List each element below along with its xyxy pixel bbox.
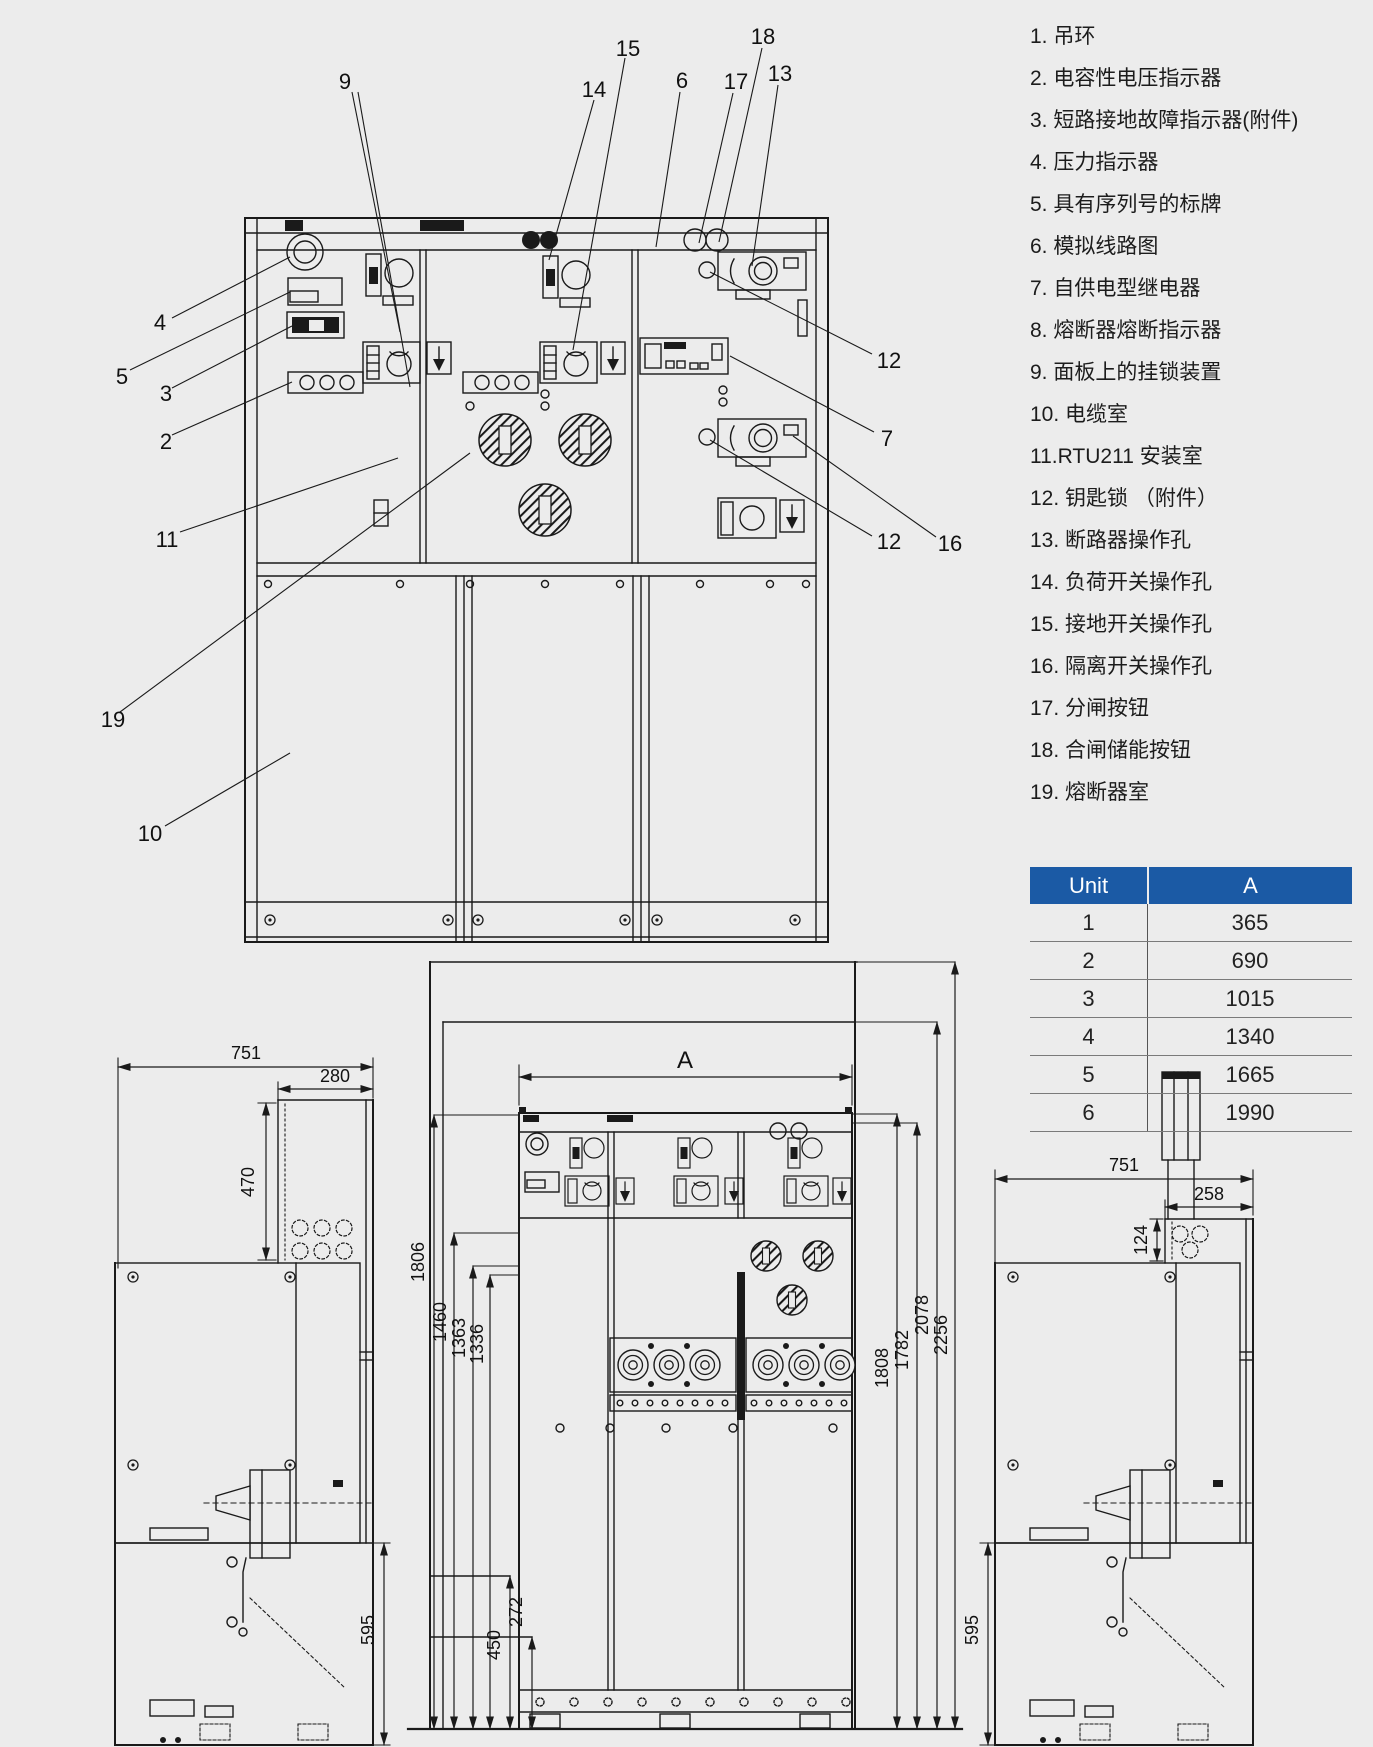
legend-item: 12. 钥匙锁 （附件） (1030, 478, 1360, 520)
dim-2256: 2256 (931, 1315, 951, 1355)
callout-5: 5 (116, 364, 128, 389)
callout-3: 3 (160, 381, 172, 406)
dim-1782: 1782 (892, 1330, 912, 1370)
table-row: 5 1665 (1030, 1056, 1352, 1094)
legend-item: 16. 隔离开关操作孔 (1030, 646, 1360, 688)
callout-6: 6 (676, 68, 688, 93)
legend-item: 6. 模拟线路图 (1030, 226, 1360, 268)
switch-position-box (540, 342, 597, 383)
unit-value: 3 (1030, 980, 1148, 1017)
legend-item: 15. 接地开关操作孔 (1030, 604, 1360, 646)
legend-item: 4. 压力指示器 (1030, 142, 1360, 184)
callout-7: 7 (881, 426, 893, 451)
dim-2078: 2078 (912, 1295, 932, 1335)
dim-right-595: 595 (962, 1615, 982, 1645)
unit-value: 5 (1030, 1056, 1148, 1093)
callout-15: 15 (616, 36, 640, 61)
callout-11: 11 (156, 527, 179, 552)
a-value: 1340 (1148, 1018, 1352, 1055)
dim-272: 272 (506, 1597, 526, 1627)
switch-position-box (363, 342, 420, 383)
legend-item: 13. 断路器操作孔 (1030, 520, 1360, 562)
legend-item: 9. 面板上的挂锁装置 (1030, 352, 1360, 394)
table-row: 2 690 (1030, 942, 1352, 980)
fuse-symbol (479, 414, 531, 466)
dim-A: A (677, 1047, 693, 1074)
left-side-view (115, 1058, 390, 1745)
dim-right-751: 751 (1109, 1155, 1139, 1175)
callout-2: 2 (160, 429, 172, 454)
dim-1363: 1363 (449, 1318, 469, 1358)
table-header-row: Unit A (1030, 867, 1352, 904)
serial-nameplate (288, 278, 342, 305)
page: 9 15 14 6 17 18 13 4 5 3 2 11 19 10 12 7… (0, 0, 1373, 1747)
legend-item: 3. 短路接地故障指示器(附件) (1030, 100, 1360, 142)
legend-item: 1. 吊环 (1030, 16, 1360, 58)
unit-value: 1 (1030, 904, 1148, 941)
unit-dimension-table: Unit A 1 365 2 690 3 1015 4 1340 5 1665 … (1030, 867, 1352, 1132)
legend-item: 17. 分闸按钮 (1030, 688, 1360, 730)
fuse-symbol (559, 414, 611, 466)
unit-value: 6 (1030, 1094, 1148, 1131)
arrow-indicator-box (427, 342, 451, 374)
arrow-indicator-box (601, 342, 625, 374)
callout-13: 13 (768, 61, 792, 86)
callout-12-top: 12 (877, 348, 901, 373)
dimension-labels: A 1806 1460 1363 1336 1808 1782 2078 225… (231, 1043, 1224, 1660)
unit-value: 4 (1030, 1018, 1148, 1055)
self-powered-relay (640, 338, 728, 374)
dim-right-124: 124 (1131, 1225, 1151, 1255)
top-marker (420, 220, 464, 231)
a-value: 1990 (1148, 1094, 1352, 1131)
top-marker (285, 220, 303, 231)
center-dimension-view (408, 962, 962, 1729)
callout-9: 9 (339, 69, 351, 94)
dim-450: 450 (484, 1630, 504, 1660)
dim-left-470: 470 (238, 1167, 258, 1197)
load-switch-module (543, 256, 590, 307)
fuse-symbol (519, 484, 571, 536)
a-value: 1015 (1148, 980, 1352, 1017)
dim-1808: 1808 (872, 1348, 892, 1388)
table-row: 1 365 (1030, 904, 1352, 942)
pressure-indicator-gauge (287, 234, 323, 270)
a-value: 690 (1148, 942, 1352, 979)
legend-item: 2. 电容性电压指示器 (1030, 58, 1360, 100)
legend-item: 18. 合闸储能按钮 (1030, 730, 1360, 772)
dim-left-595: 595 (358, 1615, 378, 1645)
table-header-unit: Unit (1030, 867, 1149, 904)
dim-left-280: 280 (320, 1066, 350, 1086)
voltage-indicator (288, 372, 363, 393)
dim-right-258: 258 (1194, 1184, 1224, 1204)
legend-item: 19. 熔断器室 (1030, 772, 1360, 814)
callout-19: 19 (101, 707, 125, 732)
table-header-a: A (1149, 867, 1352, 904)
table-row: 3 1015 (1030, 980, 1352, 1018)
legend-item: 5. 具有序列号的标牌 (1030, 184, 1360, 226)
voltage-indicator (463, 372, 538, 393)
dim-left-751: 751 (231, 1043, 261, 1063)
parts-legend: 1. 吊环 2. 电容性电压指示器 3. 短路接地故障指示器(附件) 4. 压力… (1030, 16, 1360, 814)
a-value: 1665 (1148, 1056, 1352, 1093)
fault-indicator (287, 312, 344, 338)
main-front-view (245, 218, 828, 942)
dim-1336: 1336 (467, 1324, 487, 1364)
callout-12-bottom: 12 (877, 529, 901, 554)
legend-item: 10. 电缆室 (1030, 394, 1360, 436)
callout-18: 18 (751, 24, 775, 49)
legend-item: 7. 自供电型继电器 (1030, 268, 1360, 310)
dim-1806: 1806 (408, 1242, 428, 1282)
legend-item: 8. 熔断器熔断指示器 (1030, 310, 1360, 352)
callout-4: 4 (154, 310, 166, 335)
callout-labels: 9 15 14 6 17 18 13 4 5 3 2 11 19 10 12 7… (101, 24, 962, 846)
a-value: 365 (1148, 904, 1352, 941)
legend-item: 11.RTU211 安装室 (1030, 436, 1360, 478)
dim-1460: 1460 (430, 1302, 450, 1342)
table-row: 6 1990 (1030, 1094, 1352, 1132)
callout-16: 16 (938, 531, 962, 556)
legend-item: 14. 负荷开关操作孔 (1030, 562, 1360, 604)
callout-10: 10 (138, 821, 162, 846)
callout-17: 17 (724, 69, 748, 94)
table-row: 4 1340 (1030, 1018, 1352, 1056)
callout-14: 14 (582, 77, 606, 102)
unit-value: 2 (1030, 942, 1148, 979)
